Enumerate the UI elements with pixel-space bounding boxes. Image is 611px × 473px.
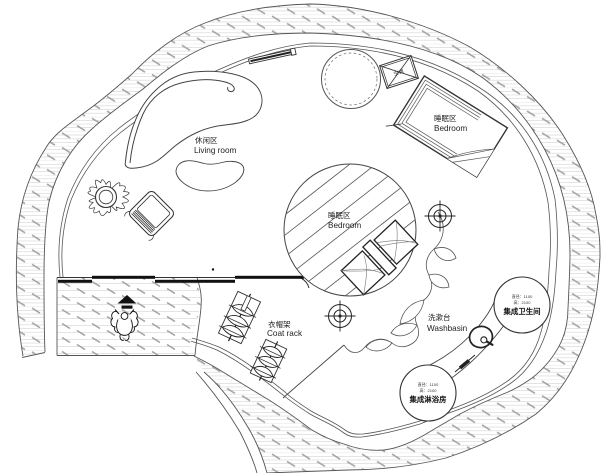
svg-text:衣帽架: 衣帽架 xyxy=(268,319,291,329)
svg-text:Bedroom: Bedroom xyxy=(328,221,361,230)
svg-text:Living room: Living room xyxy=(194,146,237,155)
svg-text:Bedroom: Bedroom xyxy=(434,124,467,133)
svg-text:Coat rack: Coat rack xyxy=(267,329,303,338)
svg-text:Washbasin: Washbasin xyxy=(427,324,468,333)
svg-text:洗漱台: 洗漱台 xyxy=(428,312,451,322)
svg-text:直径：1100: 直径：1100 xyxy=(512,293,533,299)
svg-text:高：2100: 高：2100 xyxy=(420,387,438,393)
svg-text:睡眠区: 睡眠区 xyxy=(328,211,351,220)
svg-text:直径：1100: 直径：1100 xyxy=(418,381,439,387)
svg-text:高：2100: 高：2100 xyxy=(514,299,532,305)
svg-text:集成淋浴房: 集成淋浴房 xyxy=(409,395,447,404)
svg-text:休闲区: 休闲区 xyxy=(195,135,218,145)
svg-text:集成卫生间: 集成卫生间 xyxy=(503,307,541,316)
svg-text:睡眠区: 睡眠区 xyxy=(434,114,457,123)
